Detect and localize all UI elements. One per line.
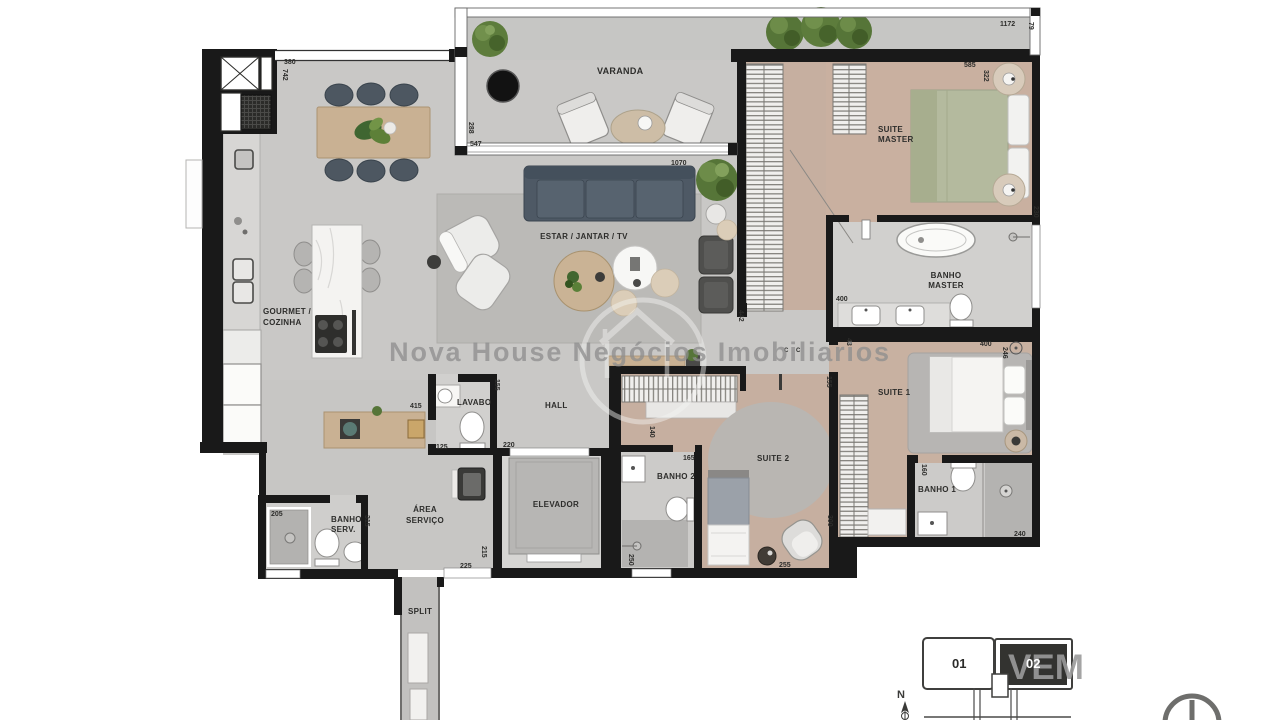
svg-text:215: 215 <box>480 546 487 558</box>
svg-text:N: N <box>897 689 905 701</box>
svg-text:VARANDA: VARANDA <box>597 66 644 76</box>
svg-text:MASTER: MASTER <box>928 281 964 290</box>
svg-text:ESTAR / JANTAR / TV: ESTAR / JANTAR / TV <box>540 232 628 241</box>
svg-text:HALL: HALL <box>545 401 568 410</box>
svg-text:315: 315 <box>363 515 370 527</box>
svg-text:SPLIT: SPLIT <box>408 607 432 616</box>
svg-text:160: 160 <box>920 464 927 476</box>
svg-text:442: 442 <box>737 310 744 322</box>
svg-text:SUITE 2: SUITE 2 <box>757 454 790 463</box>
svg-text:255: 255 <box>779 562 791 569</box>
svg-text:SUITE 1: SUITE 1 <box>878 388 911 397</box>
svg-text:288: 288 <box>467 122 474 134</box>
svg-text:220: 220 <box>503 442 515 449</box>
svg-text:380: 380 <box>284 59 296 66</box>
svg-text:Nova House Negócios Imobiliari: Nova House Negócios Imobiliarios <box>389 337 891 367</box>
svg-text:250: 250 <box>627 554 634 566</box>
svg-text:246: 246 <box>1001 347 1008 359</box>
svg-text:BANHO: BANHO <box>931 271 962 280</box>
svg-text:1172: 1172 <box>1000 21 1015 28</box>
svg-text:140: 140 <box>648 426 655 438</box>
svg-text:BANHO 1: BANHO 1 <box>918 485 956 494</box>
svg-text:MASTER: MASTER <box>878 135 914 144</box>
svg-text:BANHO 2: BANHO 2 <box>657 472 695 481</box>
svg-text:1070: 1070 <box>671 160 687 167</box>
svg-text:155: 155 <box>825 376 832 388</box>
svg-text:240: 240 <box>1014 531 1026 538</box>
svg-text:165: 165 <box>683 455 695 462</box>
svg-text:LAVABO: LAVABO <box>457 398 491 407</box>
svg-text:155: 155 <box>493 379 500 391</box>
svg-text:VEM: VEM <box>1008 648 1084 687</box>
svg-text:SERVIÇO: SERVIÇO <box>406 516 444 525</box>
svg-text:400: 400 <box>980 341 992 348</box>
svg-text:02: 02 <box>1026 656 1040 671</box>
svg-text:ELEVADOR: ELEVADOR <box>533 500 579 509</box>
svg-text:225: 225 <box>460 563 472 570</box>
svg-text:585: 585 <box>964 62 976 69</box>
svg-text:01: 01 <box>952 656 966 671</box>
svg-text:300: 300 <box>826 515 833 527</box>
svg-text:125: 125 <box>436 444 448 451</box>
svg-text:547: 547 <box>470 141 482 148</box>
svg-text:BANHO: BANHO <box>331 515 362 524</box>
svg-text:79: 79 <box>1027 22 1034 30</box>
svg-text:SUITE: SUITE <box>878 125 903 134</box>
svg-text:230: 230 <box>1032 206 1039 218</box>
svg-text:SERV.: SERV. <box>331 525 356 534</box>
svg-text:GOURMET /: GOURMET / <box>263 307 312 316</box>
svg-text:ÁREA: ÁREA <box>413 505 437 514</box>
svg-text:415: 415 <box>410 403 422 410</box>
svg-text:205: 205 <box>271 511 283 518</box>
svg-text:322: 322 <box>982 70 989 82</box>
svg-text:400: 400 <box>836 296 848 303</box>
svg-text:742: 742 <box>281 69 288 81</box>
svg-text:COZINHA: COZINHA <box>263 318 302 327</box>
